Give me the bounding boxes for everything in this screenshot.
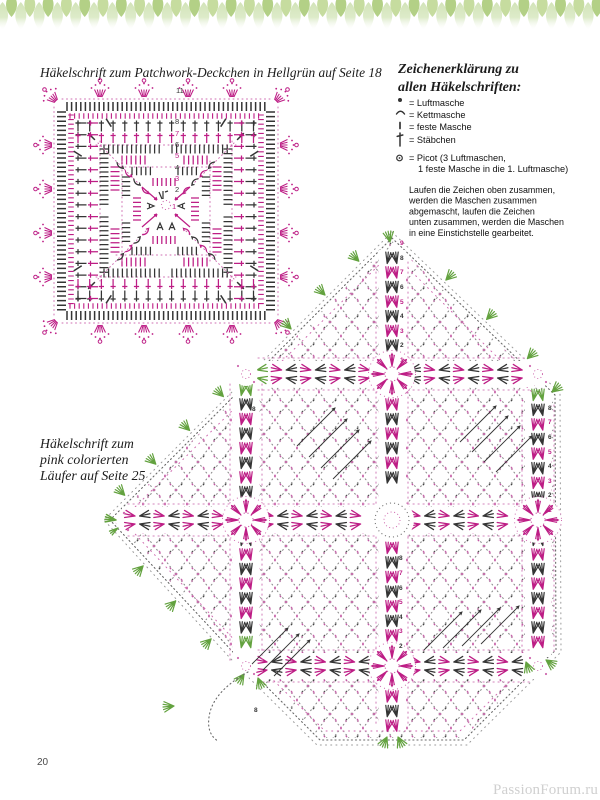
svg-text:7: 7 <box>399 570 403 577</box>
svg-text:6: 6 <box>399 585 403 592</box>
svg-text:1 feste Masche in die 1. Luftm: 1 feste Masche in die 1. Luftmasche) <box>418 164 568 174</box>
svg-text:5: 5 <box>548 449 552 456</box>
svg-text:8: 8 <box>175 117 179 126</box>
svg-text:20: 20 <box>37 757 49 768</box>
svg-text:8: 8 <box>399 555 403 562</box>
svg-text:in eine Einstichstelle gearbei: in eine Einstichstelle gearbeitet. <box>409 228 534 238</box>
svg-text:4: 4 <box>400 313 404 320</box>
svg-text:3: 3 <box>175 174 179 183</box>
svg-text:1: 1 <box>172 202 176 211</box>
svg-text:2: 2 <box>399 643 403 650</box>
svg-text:unten zusammen, werden die Mas: unten zusammen, werden die Maschen <box>409 217 564 227</box>
svg-text:2: 2 <box>400 342 404 349</box>
svg-text:4: 4 <box>548 463 552 470</box>
svg-text:pink colorierten: pink colorierten <box>39 452 129 467</box>
svg-text:= Luftmasche: = Luftmasche <box>409 98 464 108</box>
svg-text:Zeichenerklärung zu: Zeichenerklärung zu <box>397 62 519 77</box>
svg-text:7: 7 <box>548 419 552 426</box>
svg-text:= Kettmasche: = Kettmasche <box>409 110 465 120</box>
svg-text:8: 8 <box>254 707 258 714</box>
svg-text:2: 2 <box>548 492 552 499</box>
svg-text:Läufer auf Seite 25: Läufer auf Seite 25 <box>39 468 145 483</box>
svg-text:Laufen die Zeichen oben zusamm: Laufen die Zeichen oben zusammen, <box>409 185 555 195</box>
svg-text:Häkelschrift zum: Häkelschrift zum <box>39 436 134 451</box>
svg-text:1: 1 <box>400 357 404 364</box>
svg-text:2: 2 <box>175 185 179 194</box>
svg-text:4: 4 <box>175 163 179 172</box>
svg-text:5: 5 <box>400 299 404 306</box>
svg-text:6: 6 <box>548 434 552 441</box>
svg-text:= Stäbchen: = Stäbchen <box>409 135 456 145</box>
svg-text:11: 11 <box>176 86 184 95</box>
svg-text:Häkelschrift zum Patchwork-Dec: Häkelschrift zum Patchwork-Deckchen in H… <box>39 65 382 80</box>
svg-text:6: 6 <box>175 140 179 149</box>
svg-text:5: 5 <box>399 599 403 606</box>
svg-text:6: 6 <box>400 284 404 291</box>
svg-text:7: 7 <box>400 269 404 276</box>
svg-text:3: 3 <box>548 478 552 485</box>
svg-text:= Picot (3 Luftmaschen,: = Picot (3 Luftmaschen, <box>409 153 506 163</box>
svg-text:5: 5 <box>175 151 179 160</box>
svg-text:7: 7 <box>175 129 179 138</box>
svg-text:3: 3 <box>399 628 403 635</box>
svg-text:= feste Masche: = feste Masche <box>409 122 472 132</box>
svg-text:4: 4 <box>399 614 403 621</box>
svg-text:allen Häkelschriften:: allen Häkelschriften: <box>398 80 521 95</box>
svg-text:8: 8 <box>252 406 256 413</box>
svg-text:werden die Maschen zusammen: werden die Maschen zusammen <box>408 196 537 206</box>
svg-text:1: 1 <box>548 507 552 514</box>
svg-text:8: 8 <box>400 255 404 262</box>
svg-text:abgemascht, laufen die Zeichen: abgemascht, laufen die Zeichen <box>409 206 535 216</box>
svg-text:3: 3 <box>400 328 404 335</box>
svg-text:9: 9 <box>400 240 404 247</box>
svg-text:PassionForum.ru: PassionForum.ru <box>493 782 598 798</box>
svg-text:8: 8 <box>548 405 552 412</box>
